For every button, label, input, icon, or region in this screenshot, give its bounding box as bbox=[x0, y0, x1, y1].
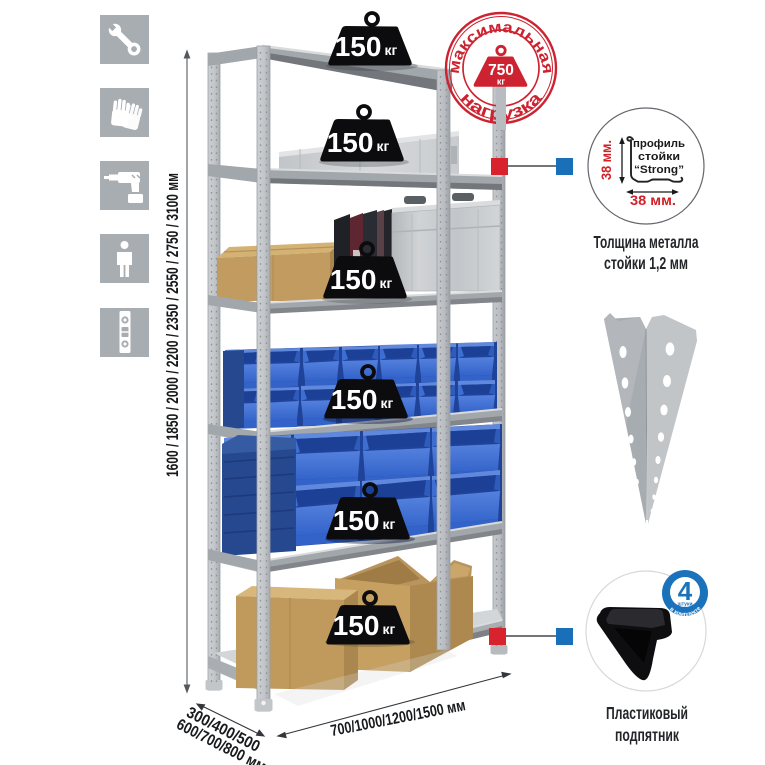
svg-text:подпятник: подпятник bbox=[615, 725, 679, 745]
svg-text:Пластиковый: Пластиковый bbox=[606, 703, 688, 723]
svg-text:штуки: штуки bbox=[677, 602, 692, 608]
svg-text:38 мм.: 38 мм. bbox=[630, 192, 676, 208]
svg-text:Толщина металла: Толщина металла bbox=[594, 232, 699, 252]
svg-text:1600 / 1850 / 2000 / 2200 / 23: 1600 / 1850 / 2000 / 2200 / 2350 / 2550 … bbox=[164, 173, 182, 477]
svg-text:38 мм.: 38 мм. bbox=[599, 140, 614, 180]
svg-text:стойки 1,2 мм: стойки 1,2 мм bbox=[604, 253, 688, 273]
svg-text:стойки: стойки bbox=[638, 151, 680, 163]
svg-text:кг: кг bbox=[497, 77, 506, 87]
svg-text:“Strong”: “Strong” bbox=[634, 164, 684, 176]
svg-text:профиль: профиль bbox=[633, 138, 685, 150]
